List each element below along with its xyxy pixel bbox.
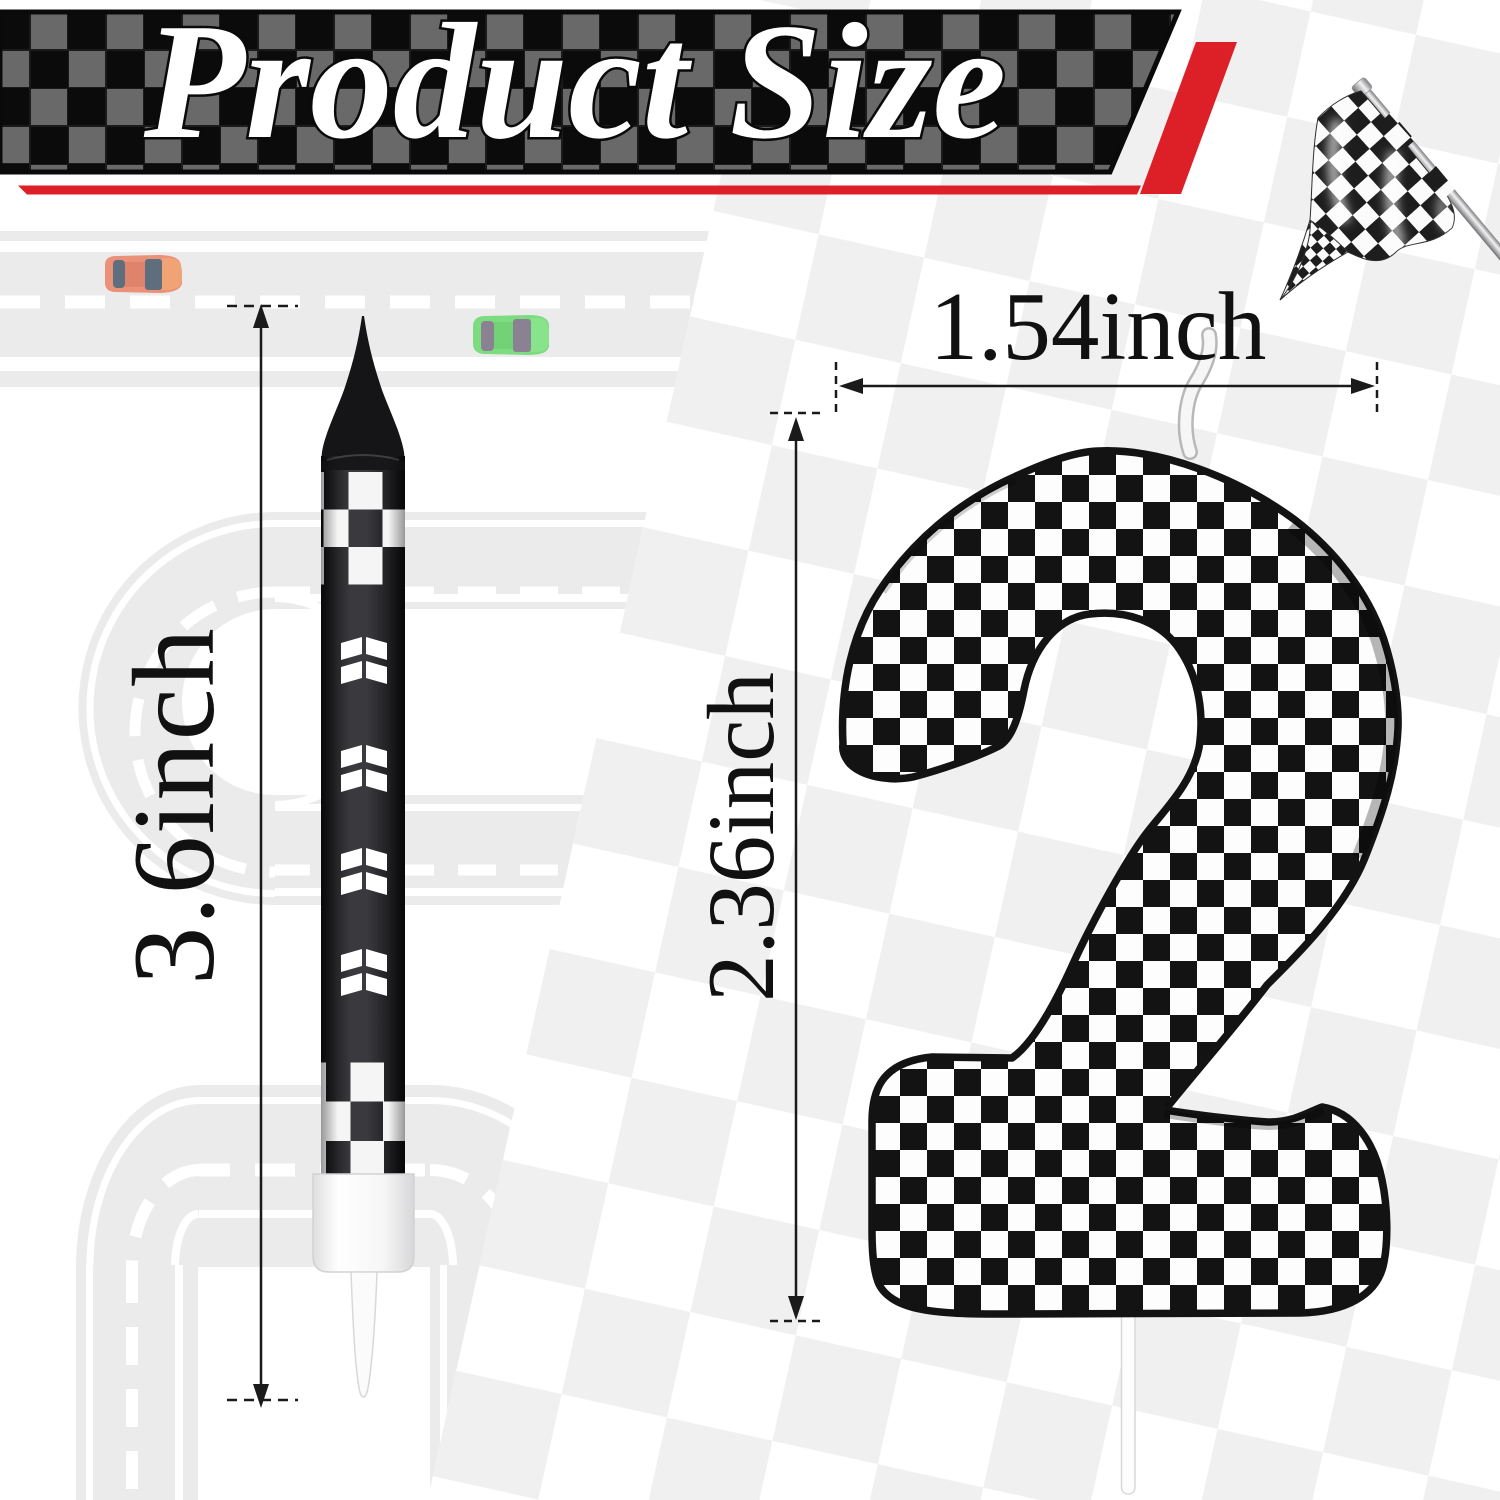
svg-text:Product Size: Product Size xyxy=(143,0,1006,173)
svg-text:2.36inch: 2.36inch xyxy=(688,672,794,1002)
svg-text:1.54inch: 1.54inch xyxy=(930,273,1267,380)
svg-text:3.6inch: 3.6inch xyxy=(110,627,239,985)
